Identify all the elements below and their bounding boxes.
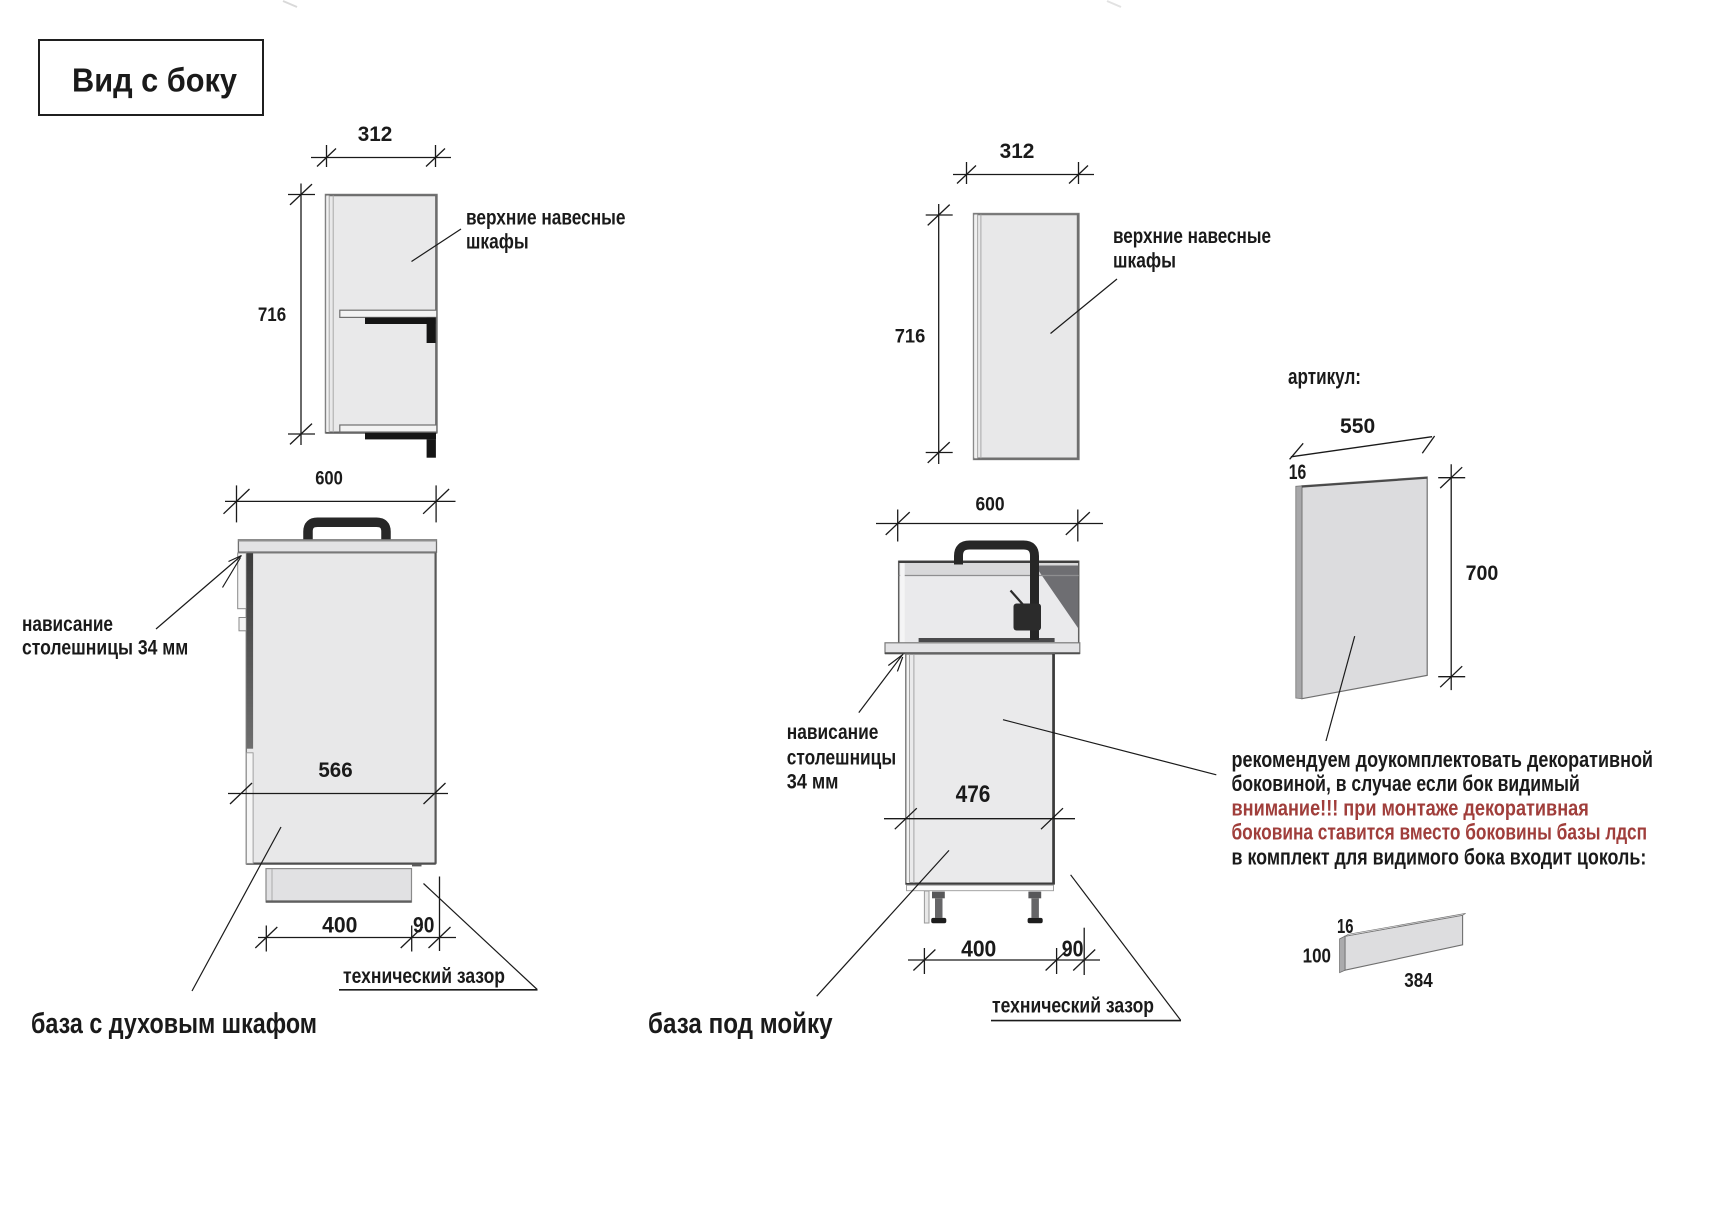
svg-text:верхние навесные: верхние навесные: [466, 206, 626, 230]
svg-text:384: 384: [1404, 969, 1433, 992]
svg-text:база с духовым шкафом: база с духовым шкафом: [31, 1008, 317, 1040]
svg-text:шкафы: шкафы: [1113, 249, 1176, 273]
svg-text:база под мойку: база под мойку: [648, 1008, 833, 1040]
svg-text:400: 400: [961, 935, 996, 961]
svg-text:верхние навесные: верхние навесные: [1113, 224, 1271, 248]
svg-text:технический зазор: технический зазор: [992, 994, 1154, 1018]
svg-text:внимание!!! при монтаже декора: внимание!!! при монтаже декоративная: [1232, 796, 1589, 821]
svg-text:16: 16: [1337, 915, 1354, 938]
svg-text:нависание: нависание: [787, 720, 879, 744]
svg-text:100: 100: [1303, 945, 1331, 968]
svg-text:566: 566: [318, 759, 352, 782]
svg-text:550: 550: [1340, 415, 1375, 438]
svg-text:столешницы 34 мм: столешницы 34 мм: [22, 636, 188, 660]
svg-text:боковина ставится вместо боков: боковина ставится вместо боковины базы л…: [1232, 820, 1648, 845]
svg-text:столешницы: столешницы: [787, 745, 896, 769]
svg-text:рекомендуем доукомплектовать д: рекомендуем доукомплектовать декоративно…: [1232, 747, 1654, 772]
svg-text:716: 716: [258, 305, 286, 326]
svg-text:боковиной, в случае если бок в: боковиной, в случае если бок видимый: [1232, 771, 1580, 796]
svg-text:16: 16: [1289, 461, 1307, 484]
svg-text:600: 600: [975, 495, 1004, 516]
svg-text:700: 700: [1466, 562, 1499, 585]
svg-text:технический зазор: технический зазор: [343, 964, 505, 988]
svg-text:артикул:: артикул:: [1288, 364, 1361, 389]
svg-text:476: 476: [956, 781, 991, 808]
svg-text:34 мм: 34 мм: [787, 770, 839, 794]
svg-text:312: 312: [358, 123, 393, 146]
svg-text:400: 400: [322, 912, 357, 937]
svg-text:716: 716: [895, 327, 926, 348]
svg-text:Вид с боку: Вид с боку: [72, 62, 238, 99]
svg-text:600: 600: [315, 469, 343, 490]
svg-text:90: 90: [1062, 935, 1084, 961]
svg-text:в комплект для видимого бока в: в комплект для видимого бока входит цоко…: [1232, 845, 1647, 870]
svg-text:шкафы: шкафы: [466, 230, 529, 254]
svg-text:312: 312: [1000, 140, 1035, 163]
svg-text:нависание: нависание: [22, 612, 113, 636]
